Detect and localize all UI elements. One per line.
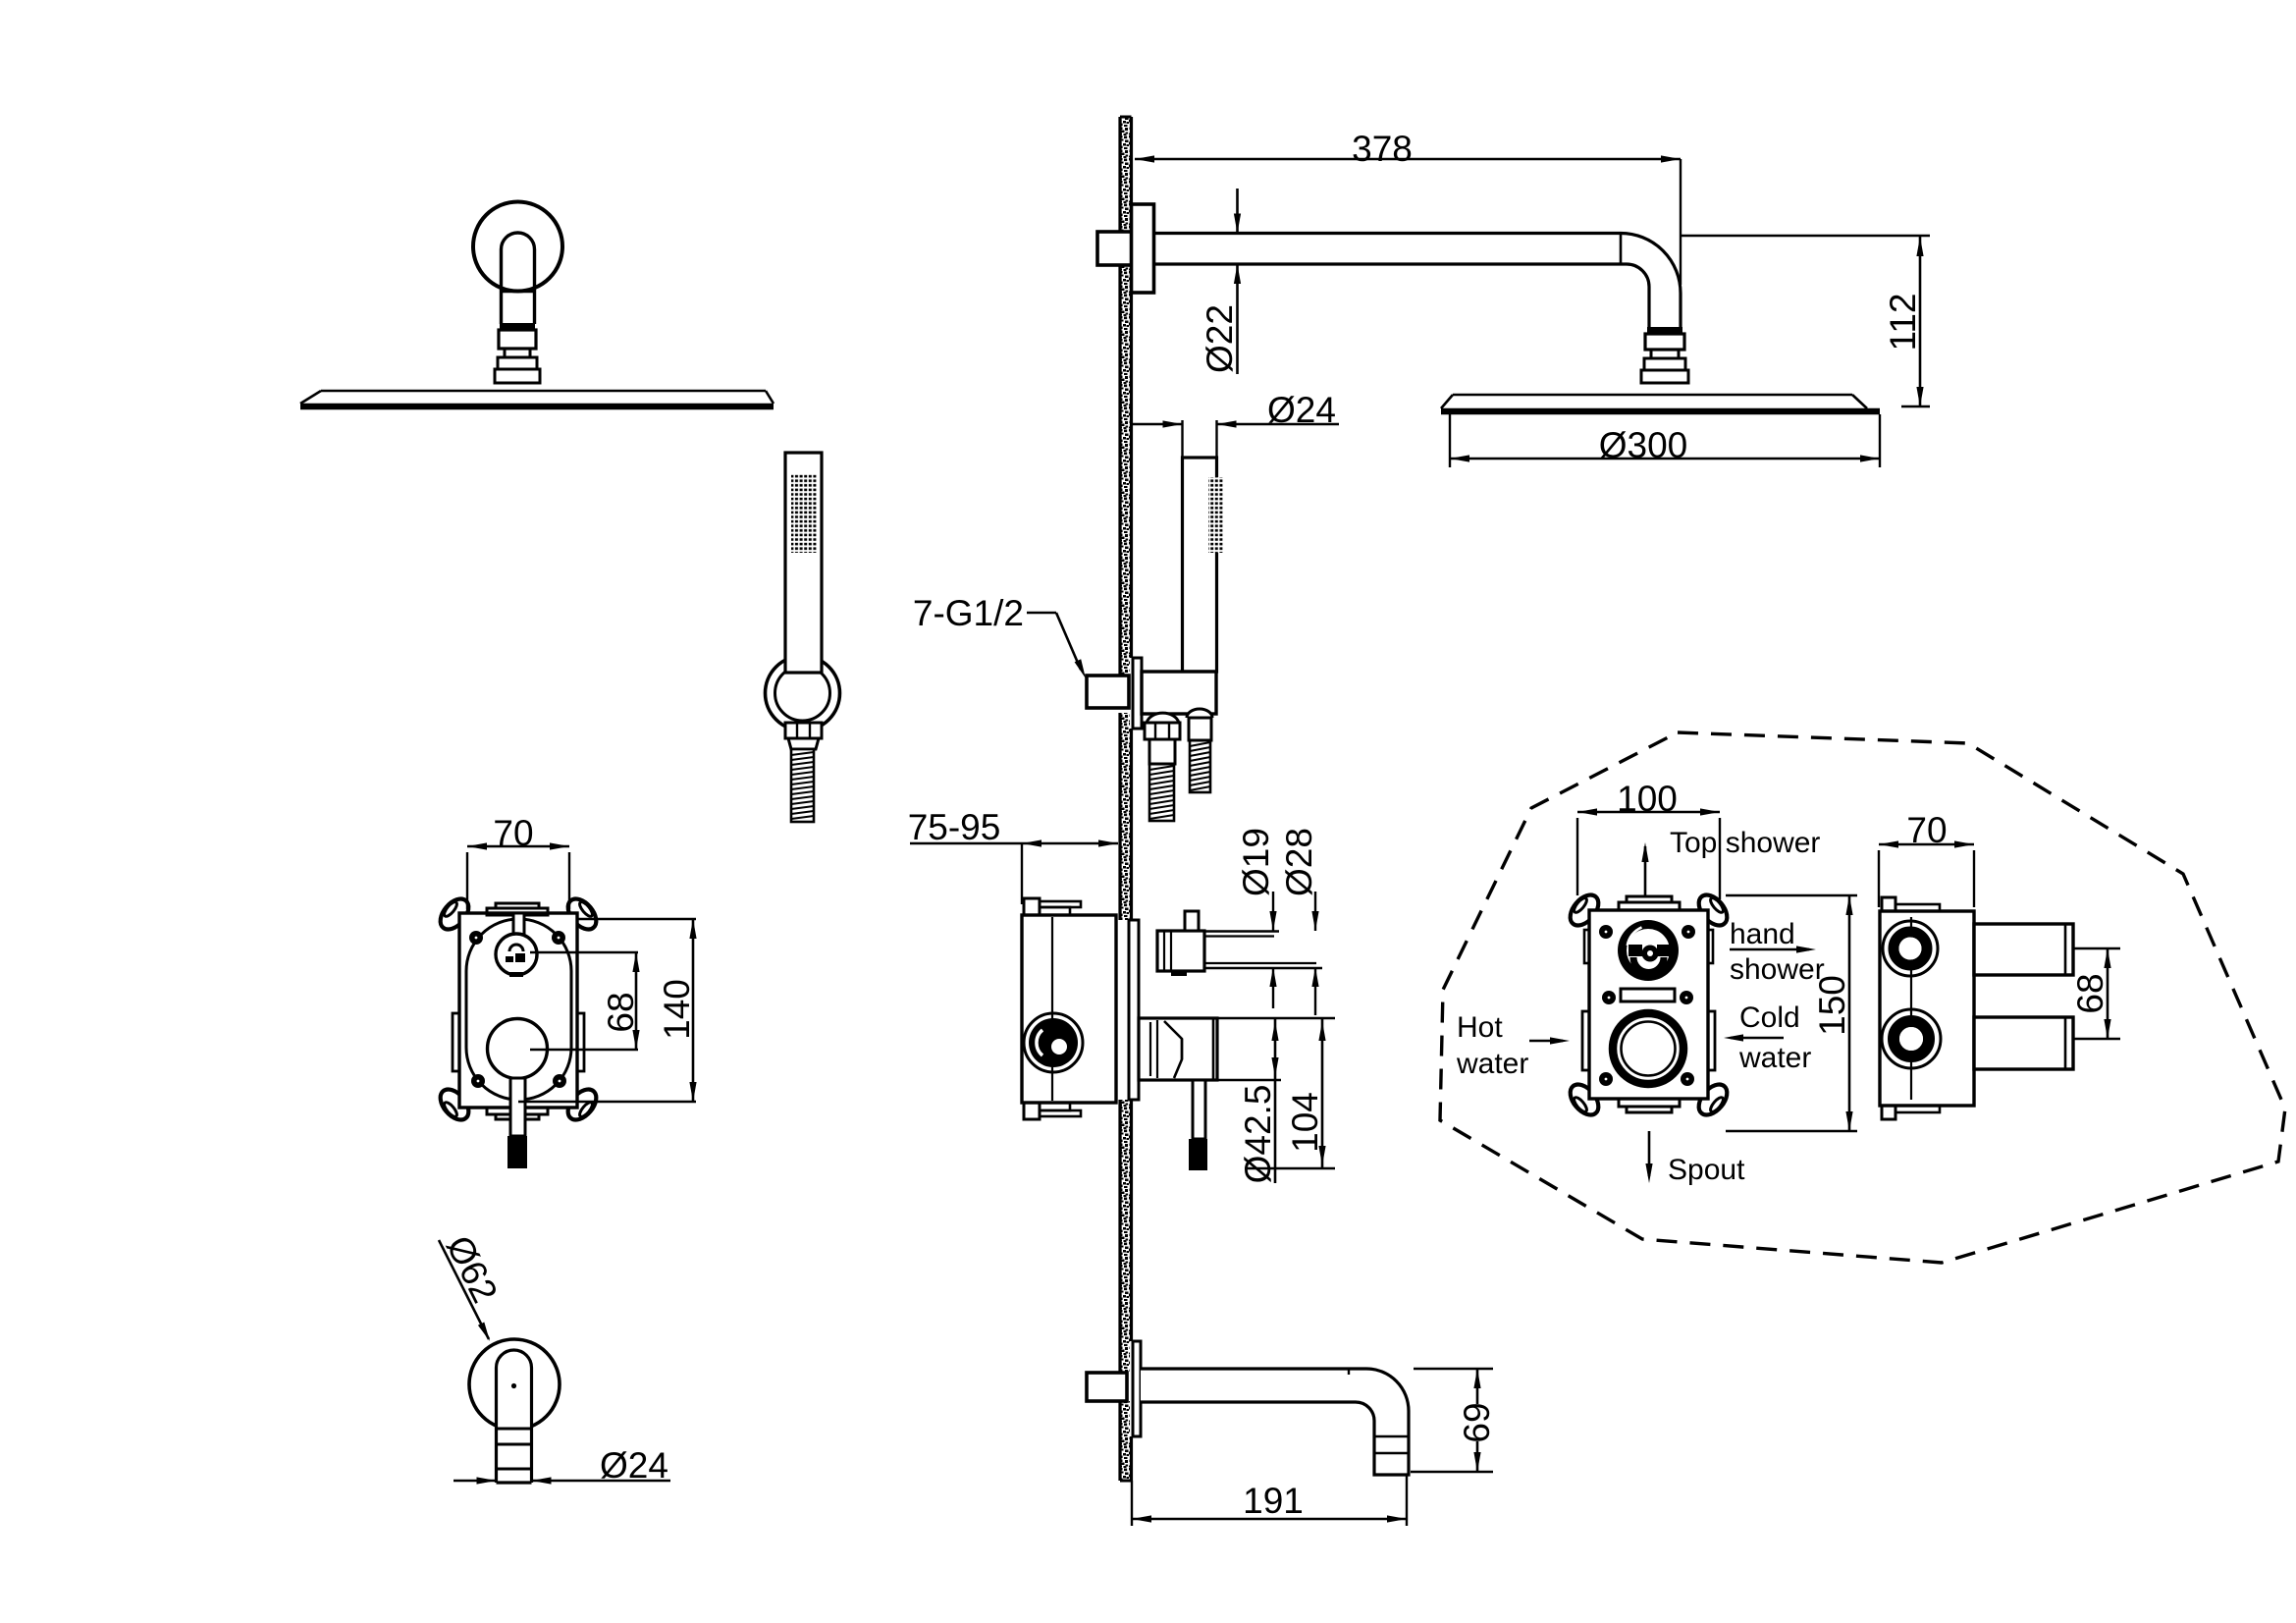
svg-text:Ø22: Ø22: [1200, 304, 1240, 373]
svg-text:Ø24: Ø24: [1267, 390, 1336, 430]
svg-text:hand: hand: [1730, 918, 1795, 950]
svg-text:68: 68: [2070, 973, 2110, 1013]
svg-text:7-G1/2: 7-G1/2: [913, 593, 1024, 633]
svg-text:shower: shower: [1730, 953, 1825, 986]
svg-text:Top shower: Top shower: [1670, 827, 1820, 859]
svg-text:water: water: [1456, 1048, 1528, 1080]
svg-text:70: 70: [493, 813, 533, 853]
svg-text:Ø28: Ø28: [1279, 828, 1319, 896]
svg-text:68: 68: [601, 992, 641, 1032]
svg-text:Spout: Spout: [1668, 1154, 1745, 1186]
svg-text:Ø24: Ø24: [600, 1445, 668, 1486]
svg-text:Hot: Hot: [1457, 1011, 1503, 1044]
svg-text:70: 70: [1906, 810, 1947, 850]
svg-text:140: 140: [657, 979, 697, 1040]
svg-text:69: 69: [1457, 1402, 1497, 1442]
svg-text:191: 191: [1243, 1481, 1304, 1521]
svg-text:104: 104: [1285, 1092, 1325, 1153]
svg-text:150: 150: [1812, 975, 1852, 1036]
svg-text:Cold: Cold: [1739, 1001, 1800, 1034]
svg-text:100: 100: [1617, 779, 1678, 819]
svg-text:75-95: 75-95: [908, 807, 1001, 847]
svg-text:water: water: [1738, 1042, 1811, 1074]
svg-text:378: 378: [1352, 129, 1413, 169]
svg-text:112: 112: [1883, 294, 1923, 352]
svg-text:Ø19: Ø19: [1236, 828, 1276, 896]
svg-text:Ø300: Ø300: [1599, 425, 1688, 465]
